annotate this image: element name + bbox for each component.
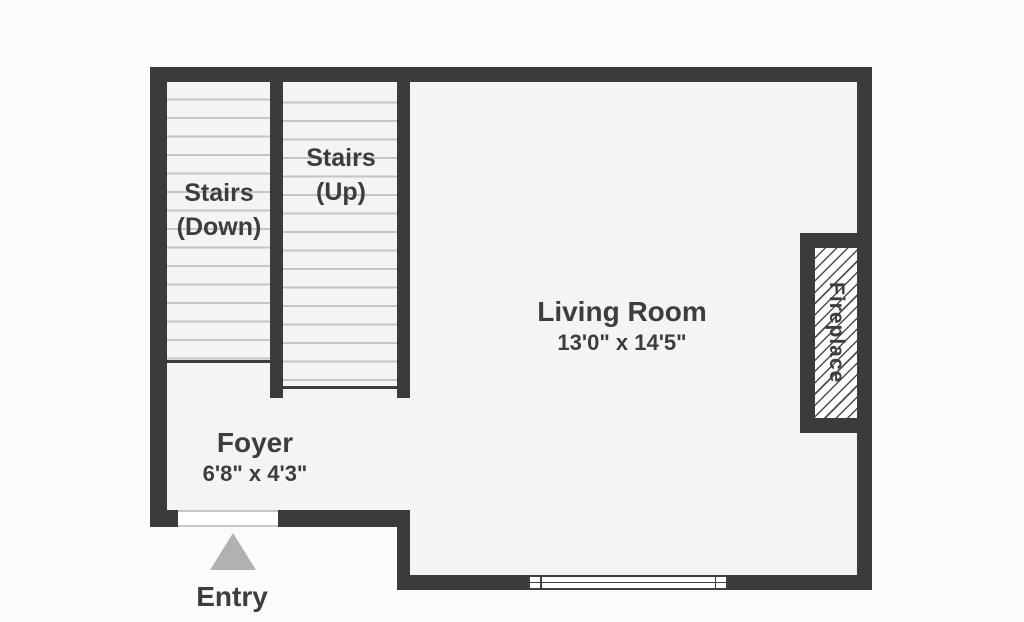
entry-door-opening bbox=[178, 510, 278, 527]
stairs-up-line2: (Up) bbox=[306, 175, 375, 209]
living-room-name: Living Room bbox=[537, 296, 707, 328]
foyer-dimensions: 6'8" x 4'3" bbox=[203, 459, 308, 489]
room-label-living-room: Living Room 13'0" x 14'5" bbox=[537, 296, 707, 358]
floor-area-living-lower bbox=[410, 510, 857, 577]
room-label-foyer: Foyer 6'8" x 4'3" bbox=[203, 427, 308, 489]
floor-plan: Fireplace Stairs (Down) Stairs (Up) Livi… bbox=[0, 0, 1024, 622]
stairs-down-line2: (Down) bbox=[177, 210, 262, 244]
entry-label: Entry bbox=[196, 581, 268, 613]
wall-step bbox=[397, 510, 410, 590]
window bbox=[528, 575, 728, 590]
fireplace-label: Fireplace bbox=[824, 282, 848, 383]
stairs-down-line1: Stairs bbox=[177, 176, 262, 210]
stairs-up-treads bbox=[283, 82, 397, 389]
foyer-name: Foyer bbox=[203, 427, 308, 459]
wall-top bbox=[150, 67, 872, 82]
wall-foyer-bottom-right bbox=[278, 510, 410, 527]
wall-between-stairs bbox=[270, 67, 283, 398]
window-divider-right bbox=[715, 577, 717, 588]
fireplace-hatch: Fireplace bbox=[815, 248, 857, 418]
living-room-dimensions: 13'0" x 14'5" bbox=[537, 328, 707, 358]
room-label-stairs-up: Stairs (Up) bbox=[306, 141, 375, 209]
entry-arrow-icon bbox=[210, 533, 256, 570]
window-divider-left bbox=[540, 577, 542, 588]
wall-foyer-bottom-left bbox=[150, 510, 178, 527]
wall-stairs-living-room bbox=[397, 67, 410, 398]
stairs-up-line1: Stairs bbox=[306, 141, 375, 175]
fireplace: Fireplace bbox=[800, 233, 870, 433]
room-label-stairs-down: Stairs (Down) bbox=[177, 176, 262, 244]
window-mid-line bbox=[530, 582, 726, 584]
wall-left bbox=[150, 67, 167, 527]
